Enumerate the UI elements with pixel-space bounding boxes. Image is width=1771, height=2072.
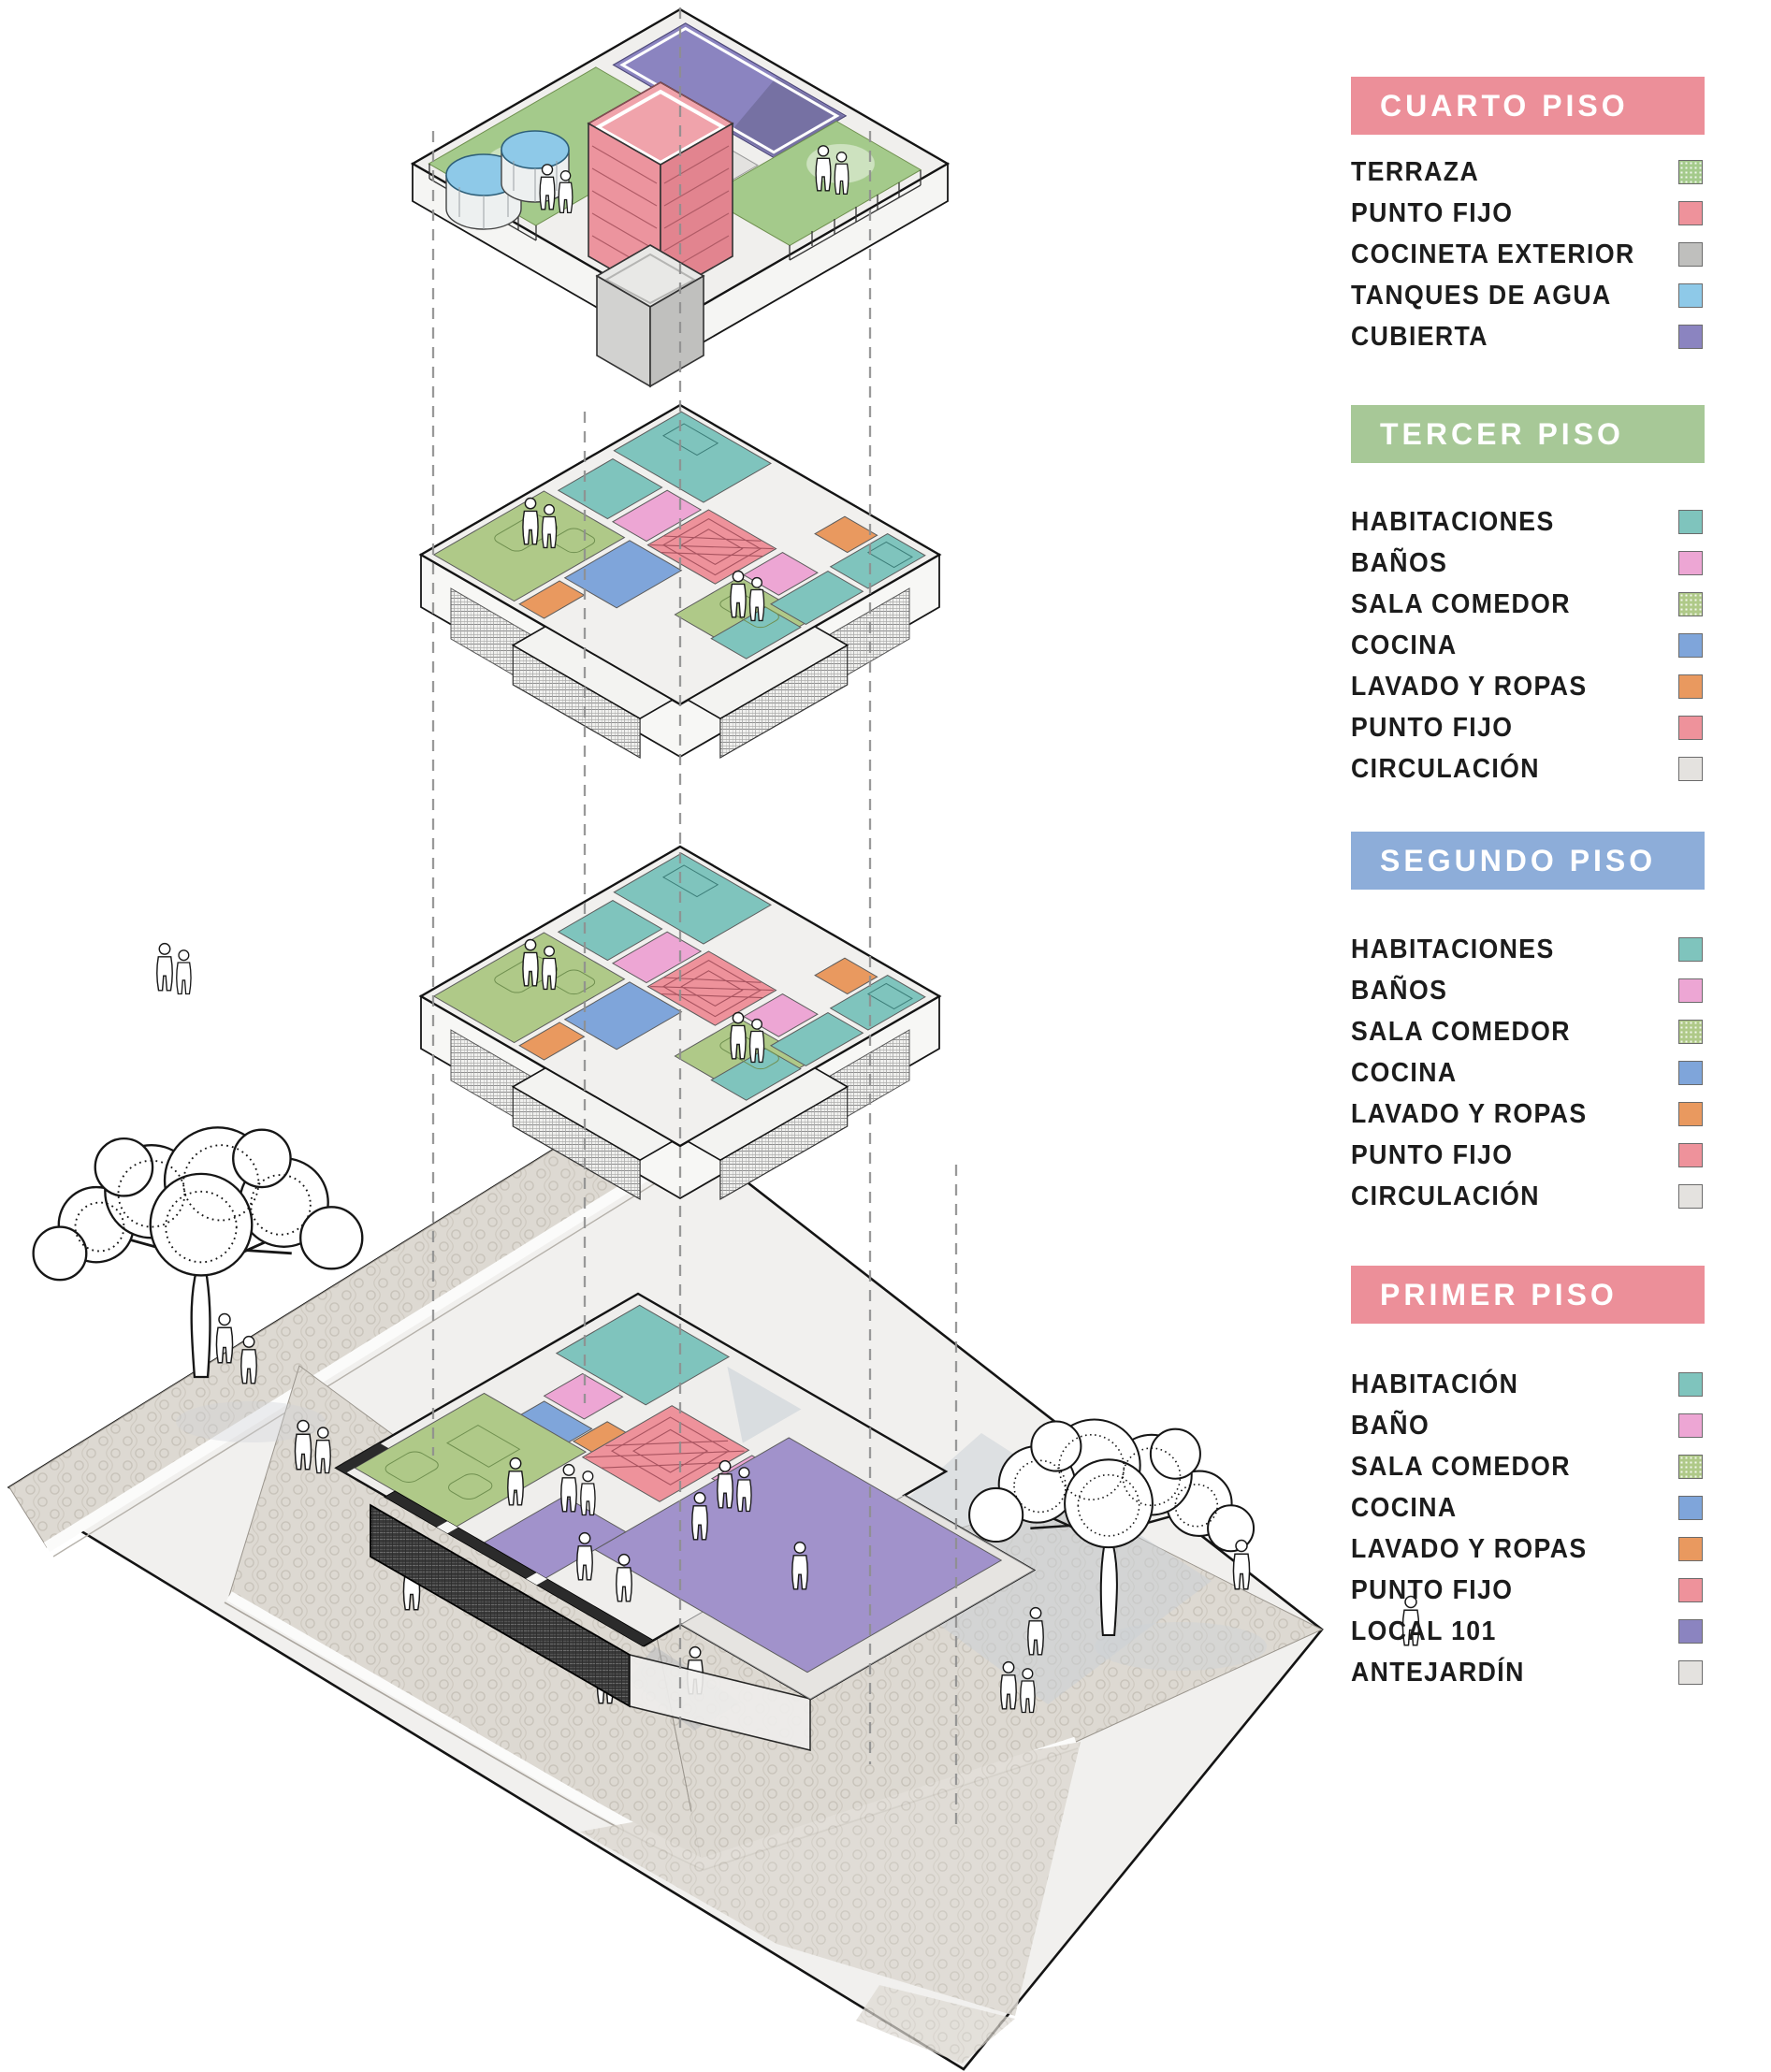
legend-row: TERRAZA xyxy=(1351,152,1705,193)
swatch-cocina xyxy=(1678,633,1703,658)
legend-row: PUNTO FIJO xyxy=(1351,193,1705,234)
legend-row: CUBIERTA xyxy=(1351,316,1705,357)
swatch-tanques xyxy=(1678,283,1703,308)
swatch-punto-fijo xyxy=(1678,1143,1703,1167)
legend-items-cuarto: TERRAZA PUNTO FIJO COCINETA EXTERIOR TAN… xyxy=(1351,152,1705,357)
swatch-local-101 xyxy=(1678,1619,1703,1644)
legend-row: SALA COMEDOR xyxy=(1351,584,1705,625)
exploded-axonometric-diagram: CUARTO PISO TERRAZA PUNTO FIJO COCINETA … xyxy=(0,0,1771,2072)
swatch-antejardin xyxy=(1678,1660,1703,1685)
legend-row: LOCAL 101 xyxy=(1351,1611,1705,1652)
legend-row: COCINA xyxy=(1351,625,1705,666)
swatch-habitaciones xyxy=(1678,510,1703,534)
swatch-sala-comedor xyxy=(1678,1455,1703,1479)
swatch-bano xyxy=(1678,1413,1703,1438)
legend-row: HABITACIONES xyxy=(1351,501,1705,543)
swatch-lavado xyxy=(1678,674,1703,699)
swatch-punto-fijo xyxy=(1678,1578,1703,1602)
swatch-lavado xyxy=(1678,1102,1703,1126)
legend-row: CIRCULACIÓN xyxy=(1351,1176,1705,1217)
swatch-lavado xyxy=(1678,1537,1703,1561)
legend-row: SALA COMEDOR xyxy=(1351,1446,1705,1487)
swatch-cocina xyxy=(1678,1061,1703,1085)
swatch-circulacion xyxy=(1678,1184,1703,1209)
legend-row: BAÑOS xyxy=(1351,970,1705,1011)
legend-row: PUNTO FIJO xyxy=(1351,707,1705,748)
legend-row: BAÑO xyxy=(1351,1405,1705,1446)
legend-row: SALA COMEDOR xyxy=(1351,1011,1705,1052)
swatch-punto-fijo xyxy=(1678,201,1703,225)
legend-items-tercer: HABITACIONES BAÑOS SALA COMEDOR COCINA L… xyxy=(1351,501,1705,790)
legend-row: BAÑOS xyxy=(1351,543,1705,584)
swatch-circulacion xyxy=(1678,757,1703,781)
legend-row: ANTEJARDÍN xyxy=(1351,1652,1705,1693)
swatch-sala-comedor xyxy=(1678,1020,1703,1044)
legend-header-primer-piso: PRIMER PISO xyxy=(1351,1266,1705,1324)
swatch-cubierta xyxy=(1678,325,1703,349)
swatch-punto-fijo xyxy=(1678,716,1703,740)
swatch-habitacion xyxy=(1678,1372,1703,1397)
legend-items-primer: HABITACIÓN BAÑO SALA COMEDOR COCINA LAVA… xyxy=(1351,1364,1705,1693)
legend-row: CIRCULACIÓN xyxy=(1351,748,1705,790)
swatch-cocina xyxy=(1678,1496,1703,1520)
legend-row: LAVADO Y ROPAS xyxy=(1351,666,1705,707)
swatch-cocineta xyxy=(1678,242,1703,267)
swatch-habitaciones xyxy=(1678,937,1703,962)
legend-row: TANQUES DE AGUA xyxy=(1351,275,1705,316)
legend-header-segundo-piso: SEGUNDO PISO xyxy=(1351,832,1705,890)
legend-row: HABITACIONES xyxy=(1351,929,1705,970)
swatch-banos xyxy=(1678,551,1703,575)
legend-header-tercer-piso: TERCER PISO xyxy=(1351,405,1705,463)
legend-row: PUNTO FIJO xyxy=(1351,1135,1705,1176)
legend-row: LAVADO Y ROPAS xyxy=(1351,1529,1705,1570)
swatch-banos xyxy=(1678,978,1703,1003)
legend-row: COCINA xyxy=(1351,1487,1705,1529)
legend-row: HABITACIÓN xyxy=(1351,1364,1705,1405)
legend-row: LAVADO Y ROPAS xyxy=(1351,1094,1705,1135)
cocineta-exterior-box xyxy=(597,245,704,386)
legend-row: PUNTO FIJO xyxy=(1351,1570,1705,1611)
legend-items-segundo: HABITACIONES BAÑOS SALA COMEDOR COCINA L… xyxy=(1351,929,1705,1217)
swatch-terraza xyxy=(1678,160,1703,184)
legend-row: COCINA xyxy=(1351,1052,1705,1094)
swatch-sala-comedor xyxy=(1678,592,1703,616)
legend-header-cuarto-piso: CUARTO PISO xyxy=(1351,77,1705,135)
legend-row: COCINETA EXTERIOR xyxy=(1351,234,1705,275)
